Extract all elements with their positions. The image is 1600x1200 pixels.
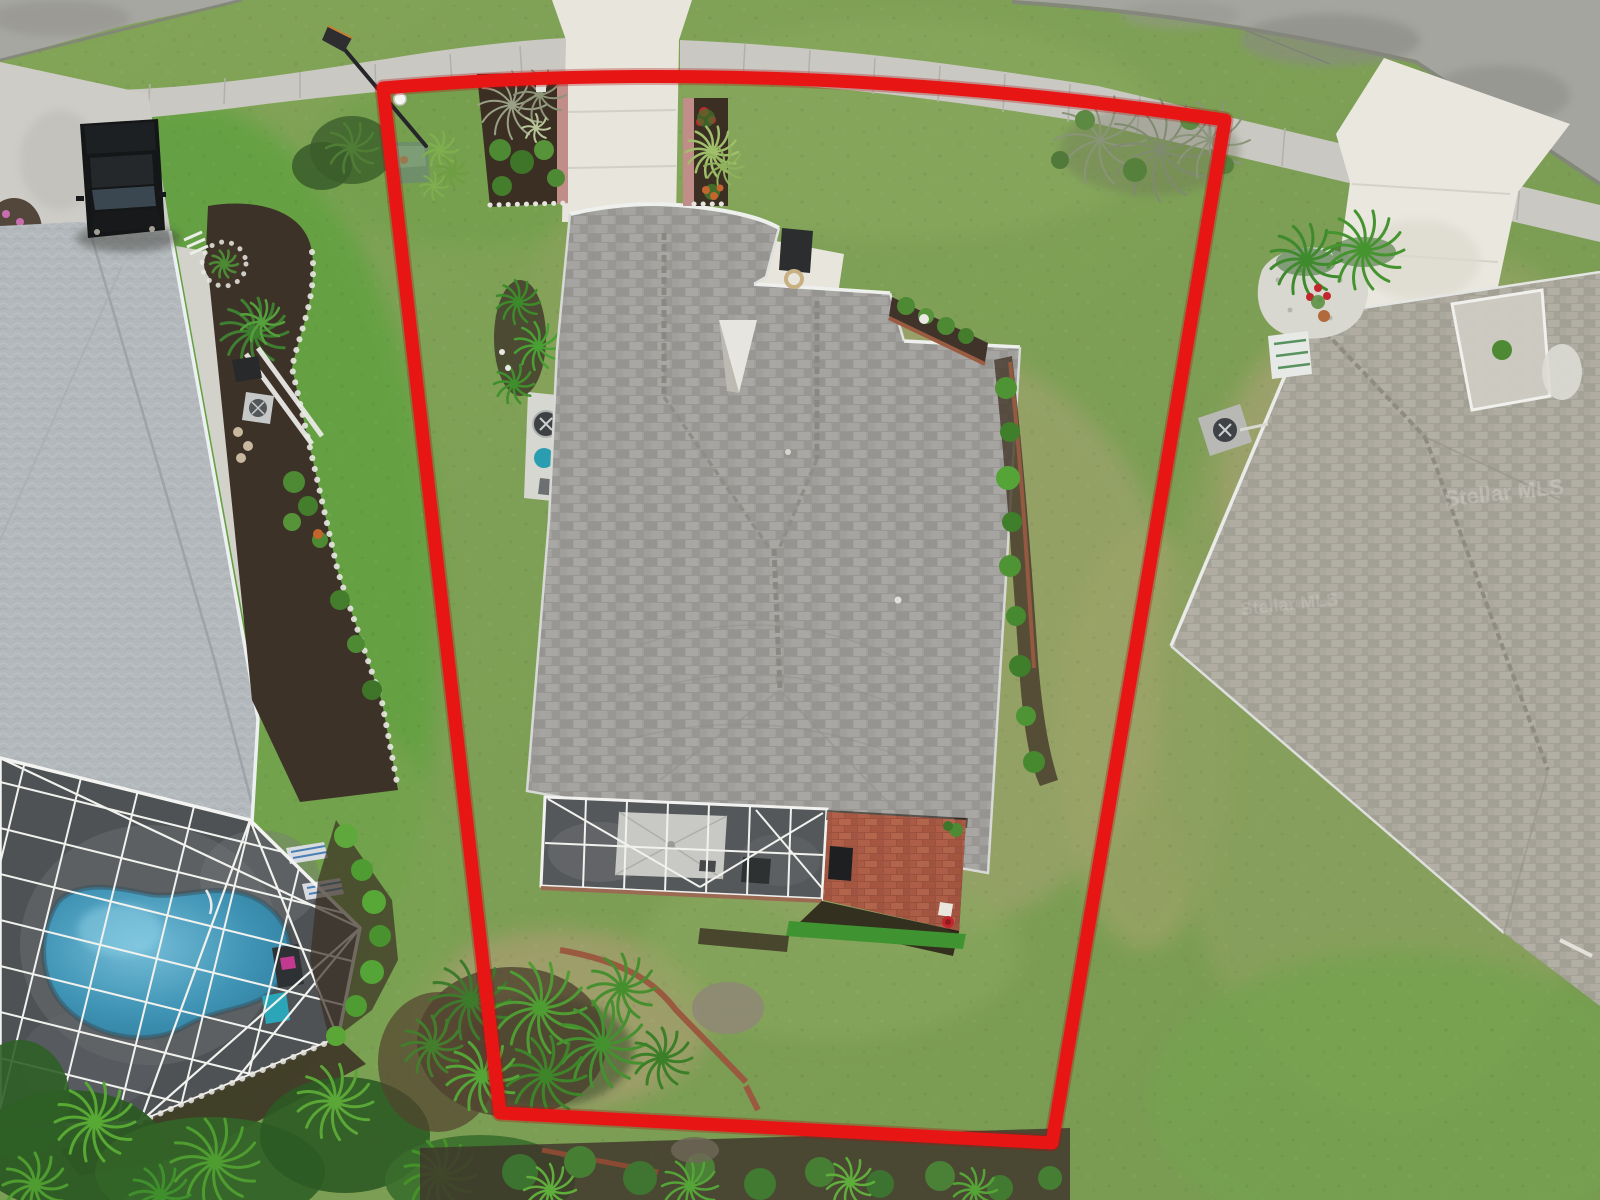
frond-center: [450, 170, 455, 175]
stepping-stone: [243, 441, 253, 451]
marker: [505, 365, 511, 371]
truck-mirror: [76, 196, 84, 201]
frond-center: [479, 1073, 485, 1079]
frond-center: [1098, 138, 1102, 142]
grill: [741, 857, 771, 884]
hedge-bush: [996, 466, 1020, 490]
shrub: [937, 317, 955, 335]
frond-center: [534, 126, 538, 130]
frond-center: [548, 1188, 553, 1193]
red-flowers: [1314, 284, 1322, 292]
frond-center: [1208, 138, 1212, 142]
shrub: [958, 328, 974, 344]
truck-cab-roof: [90, 154, 154, 188]
frond-center: [260, 320, 265, 325]
terracotta-pot: [1318, 310, 1330, 322]
truck-headlight: [149, 226, 155, 232]
utility-box-lid: [396, 146, 426, 168]
grill: [232, 356, 262, 382]
shrub: [362, 680, 382, 700]
shrub: [283, 513, 301, 531]
frond-center: [467, 997, 473, 1003]
shrub: [489, 139, 511, 161]
hedge-bush: [995, 377, 1017, 399]
frond-center: [429, 1043, 435, 1049]
truck-bed: [84, 122, 156, 154]
frond-center: [973, 1188, 978, 1193]
frond-center: [510, 103, 514, 107]
porch-mat: [779, 228, 813, 273]
flower-leaves: [1311, 295, 1325, 309]
frond-center: [157, 1192, 163, 1198]
frond-center: [688, 1184, 693, 1189]
hedge-bush: [1000, 422, 1020, 442]
frond-center: [1303, 257, 1309, 263]
orange-flowers: [710, 192, 718, 200]
frond-center: [599, 1041, 605, 1047]
frond-center: [1361, 247, 1367, 253]
rock-strip: [1542, 344, 1582, 400]
frond-center: [212, 1159, 218, 1165]
bush: [805, 1157, 835, 1187]
door-mat: [828, 846, 853, 881]
hedge-bush: [360, 960, 384, 984]
garden-statue: [919, 314, 929, 324]
frond-center: [516, 300, 521, 305]
shrub: [347, 635, 365, 653]
stepping-stone: [233, 427, 243, 437]
leaf-clump: [1075, 110, 1095, 130]
shrub: [330, 590, 350, 610]
hedge-bush: [1016, 706, 1036, 726]
bush: [623, 1161, 657, 1195]
stepping-stone: [938, 902, 953, 917]
flower-leaves: [697, 109, 715, 127]
dirt-patch: [671, 1137, 719, 1163]
pink-float: [280, 956, 296, 970]
potted-plant: [943, 821, 953, 831]
frond-center: [619, 985, 625, 991]
roof-vent: [785, 449, 791, 455]
bush: [502, 1154, 538, 1190]
leaf-clump: [1051, 151, 1069, 169]
hedge-bush: [999, 555, 1021, 577]
truck-windshield: [92, 186, 156, 210]
orange-flowers: [717, 185, 724, 192]
bush: [564, 1146, 596, 1178]
shrub: [534, 140, 554, 160]
hedge-bush: [1002, 512, 1022, 532]
pink-flower: [2, 210, 10, 218]
frond-center: [543, 1073, 549, 1079]
frond-center: [222, 262, 227, 267]
orange-flowers: [313, 529, 323, 539]
hedge-bush: [1006, 606, 1026, 626]
rock-speckle: [1288, 308, 1293, 313]
hedge-bush: [326, 1026, 346, 1046]
frond-center: [438, 148, 443, 153]
frond-center: [32, 1182, 38, 1188]
hedge-bush: [345, 995, 367, 1017]
frond-center: [848, 1180, 853, 1185]
frond-center: [512, 382, 517, 387]
bush: [1038, 1166, 1062, 1190]
frond-center: [659, 1055, 665, 1061]
center-lanai: [541, 797, 827, 901]
pink-flower: [16, 218, 24, 226]
orange-flowers: [702, 186, 710, 194]
marker: [499, 349, 505, 355]
frond-center: [92, 1119, 98, 1125]
hedge-bush: [1023, 751, 1045, 773]
bush: [925, 1161, 955, 1191]
frond-center: [1158, 148, 1162, 152]
frond-center: [350, 146, 355, 151]
frond-center: [332, 1099, 338, 1105]
leaf-clump: [1123, 158, 1147, 182]
shrub: [298, 496, 318, 516]
frond-center: [537, 1005, 543, 1011]
truck-mirror: [158, 192, 166, 197]
hedge-bush: [362, 890, 386, 914]
aerial-property-photo: Aerial drone photograph of a residential…: [0, 0, 1600, 1200]
frond-center: [536, 344, 541, 349]
bush: [987, 1175, 1013, 1200]
dirt-patch: [692, 982, 764, 1034]
shrub: [547, 169, 565, 187]
shrub: [897, 297, 915, 315]
frond-center: [722, 164, 726, 168]
scene-root: Stellar MLSStellar MLS: [0, 0, 1600, 1200]
shrub: [492, 176, 512, 196]
hedge-bush: [1009, 655, 1031, 677]
courtyard-shrub: [1492, 340, 1512, 360]
truck-headlight: [94, 229, 100, 235]
hedge-bush: [369, 925, 391, 947]
shrub: [510, 150, 534, 174]
frond-center: [432, 184, 436, 188]
stepping-stone: [236, 453, 246, 463]
aerial-photo-stage: Aerial drone photograph of a residential…: [0, 0, 1600, 1200]
bush: [744, 1168, 776, 1200]
frond-center: [538, 93, 542, 97]
hedge-bush: [351, 859, 373, 881]
rust-spot: [400, 156, 408, 164]
shrub: [283, 471, 305, 493]
hedge-bush: [334, 824, 358, 848]
roof-vent: [895, 597, 902, 604]
red-flower-pot-center: [945, 919, 951, 925]
